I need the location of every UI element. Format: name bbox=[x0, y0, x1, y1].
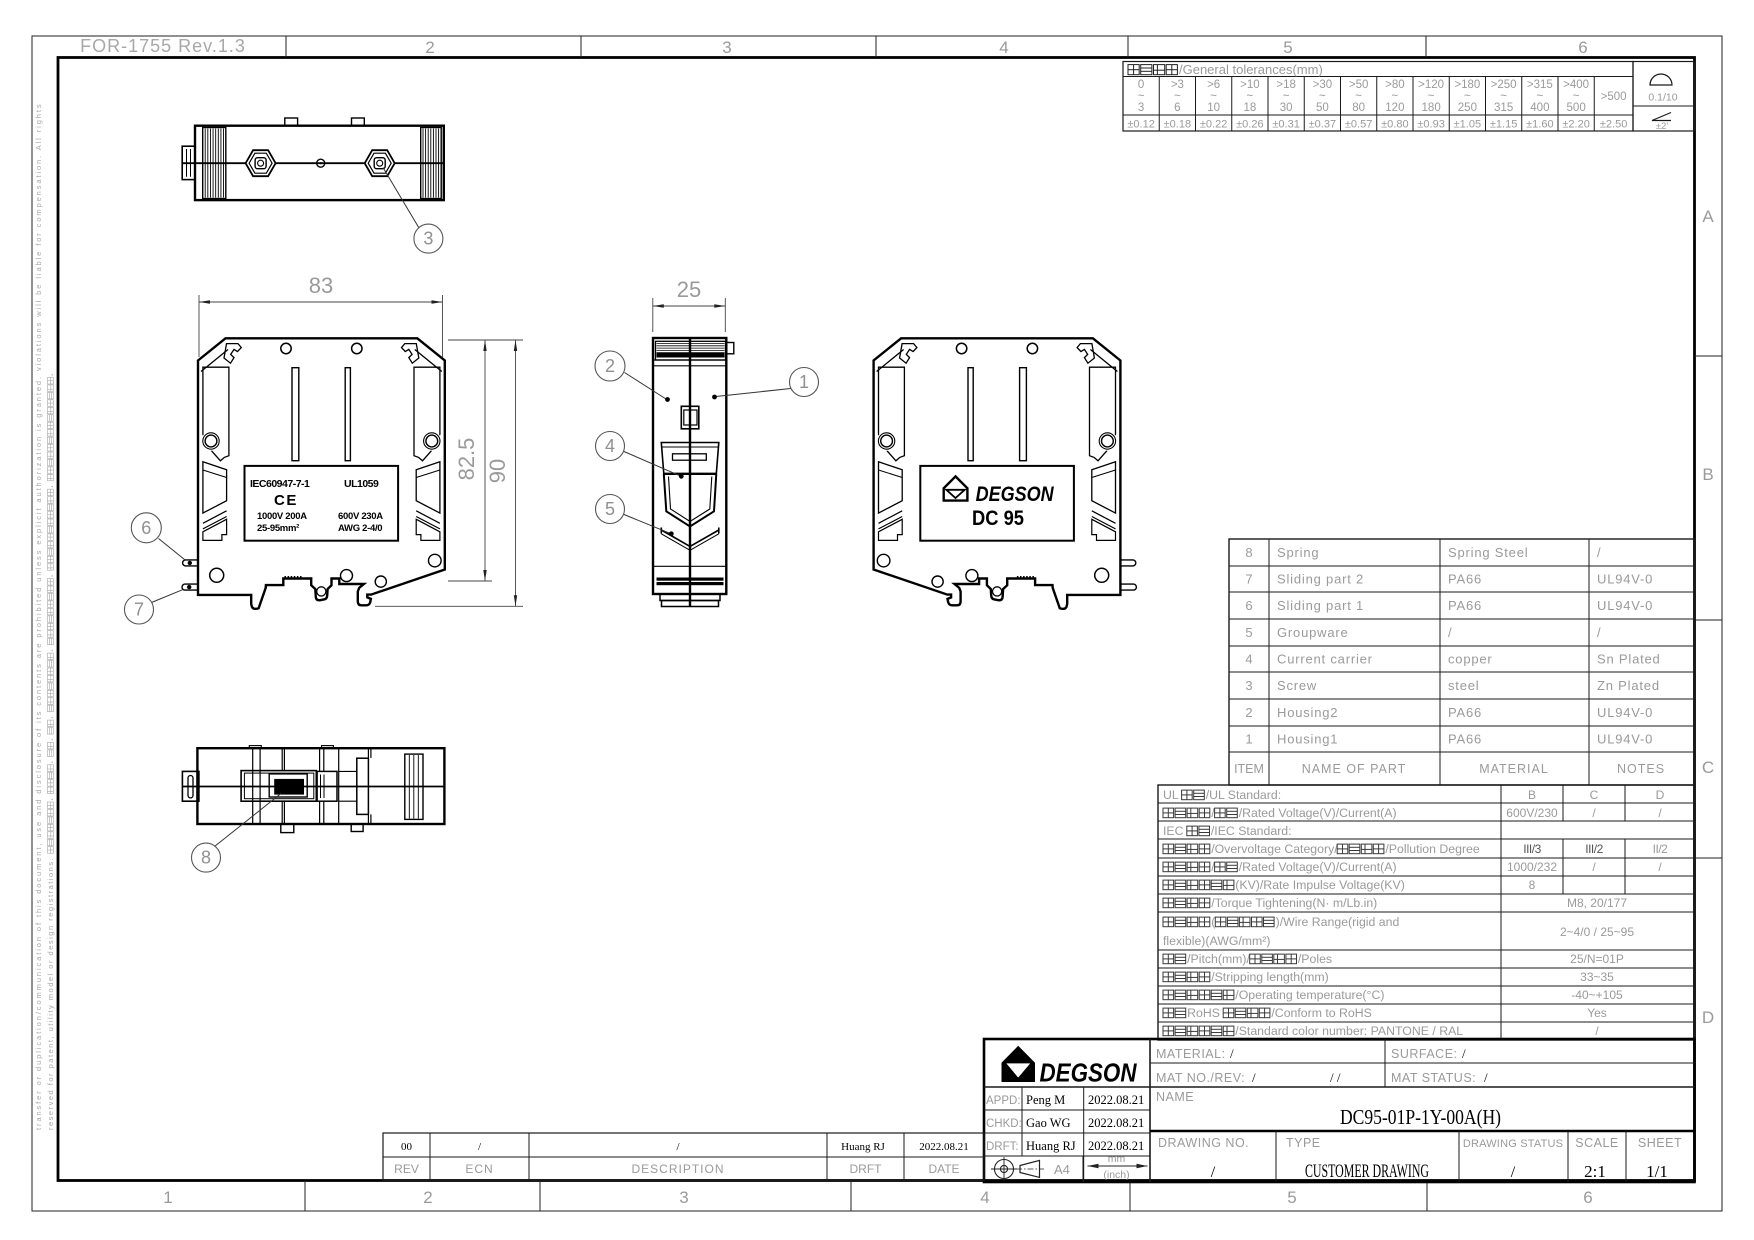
svg-text:3: 3 bbox=[679, 1188, 688, 1207]
svg-text:25-95mm²: 25-95mm² bbox=[257, 523, 299, 534]
svg-text:1: 1 bbox=[163, 1188, 172, 1207]
svg-text:~: ~ bbox=[1210, 91, 1217, 103]
svg-text:2: 2 bbox=[425, 38, 434, 57]
svg-text:~: ~ bbox=[1464, 91, 1471, 103]
svg-text:III/3: III/3 bbox=[1523, 842, 1541, 856]
svg-text:1/1: 1/1 bbox=[1646, 1162, 1668, 1181]
svg-text:2~4/0 / 25~95: 2~4/0 / 25~95 bbox=[1560, 925, 1634, 939]
svg-text:PA66: PA66 bbox=[1448, 598, 1482, 613]
svg-text:/: / bbox=[1484, 1070, 1488, 1085]
svg-text:>6: >6 bbox=[1207, 79, 1220, 91]
svg-text:82.5: 82.5 bbox=[454, 438, 479, 481]
svg-text:~: ~ bbox=[1428, 91, 1435, 103]
svg-text:DRFT:: DRFT: bbox=[986, 1141, 1019, 1153]
svg-text:±0.12: ±0.12 bbox=[1127, 119, 1154, 131]
svg-text:FOR-1755 Rev.1.3: FOR-1755 Rev.1.3 bbox=[80, 36, 246, 56]
svg-text:2022.08.21: 2022.08.21 bbox=[1088, 1139, 1144, 1153]
svg-text:)/Wire Range(rigid and: )/Wire Range(rigid and bbox=[1276, 915, 1400, 929]
svg-text:7: 7 bbox=[134, 600, 144, 620]
svg-text:UL94V-0: UL94V-0 bbox=[1597, 732, 1653, 747]
svg-text:MAT STATUS:: MAT STATUS: bbox=[1391, 1071, 1476, 1085]
svg-text:600V 230A: 600V 230A bbox=[338, 511, 383, 522]
svg-text:18: 18 bbox=[1243, 102, 1256, 114]
svg-text:RoHS: RoHS bbox=[1187, 1006, 1220, 1020]
svg-text:IEC: IEC bbox=[1163, 824, 1184, 838]
svg-text:2:1: 2:1 bbox=[1584, 1162, 1606, 1181]
svg-text:>50: >50 bbox=[1349, 79, 1369, 91]
svg-text:±1.15: ±1.15 bbox=[1490, 119, 1517, 131]
svg-text:DEGSON: DEGSON bbox=[1040, 1058, 1138, 1088]
svg-text:6: 6 bbox=[1578, 38, 1587, 57]
svg-text:/IEC Standard:: /IEC Standard: bbox=[1211, 824, 1292, 838]
svg-text:AWG 2-4/0: AWG 2-4/0 bbox=[338, 523, 382, 534]
svg-text:120: 120 bbox=[1385, 102, 1404, 114]
svg-text:B: B bbox=[1528, 788, 1536, 802]
svg-text:30: 30 bbox=[1280, 102, 1293, 114]
svg-text:/ /: / / bbox=[1330, 1070, 1341, 1085]
svg-text:/: / bbox=[1252, 1070, 1256, 1085]
svg-text:2022.08.21: 2022.08.21 bbox=[1088, 1093, 1144, 1107]
svg-text:Spring: Spring bbox=[1277, 545, 1319, 560]
svg-text:/Rated Voltage(V)/Current(A): /Rated Voltage(V)/Current(A) bbox=[1239, 806, 1397, 820]
svg-text:~: ~ bbox=[1283, 91, 1290, 103]
svg-text:600V/230: 600V/230 bbox=[1506, 806, 1558, 820]
svg-text:0.1/10: 0.1/10 bbox=[1648, 92, 1677, 104]
svg-text:5: 5 bbox=[1283, 38, 1292, 57]
svg-text:D: D bbox=[1656, 788, 1665, 802]
svg-text:flexible)(AWG/mm²): flexible)(AWG/mm²) bbox=[1163, 934, 1270, 948]
svg-text:50: 50 bbox=[1316, 102, 1329, 114]
svg-text:~: ~ bbox=[1392, 91, 1399, 103]
svg-text:2022.08.21: 2022.08.21 bbox=[919, 1141, 969, 1153]
svg-text:5: 5 bbox=[1245, 625, 1252, 640]
svg-text:250: 250 bbox=[1458, 102, 1477, 114]
svg-text:6: 6 bbox=[1174, 102, 1180, 114]
svg-text:4: 4 bbox=[999, 38, 1008, 57]
svg-text:mm: mm bbox=[1108, 1153, 1126, 1165]
svg-text:PA66: PA66 bbox=[1448, 705, 1482, 720]
svg-text:C: C bbox=[1590, 788, 1599, 802]
svg-text:1000/232: 1000/232 bbox=[1507, 860, 1557, 874]
svg-text:>250: >250 bbox=[1491, 79, 1517, 91]
svg-text:±0.37: ±0.37 bbox=[1309, 119, 1336, 131]
svg-text:1: 1 bbox=[1245, 732, 1252, 747]
svg-text:3: 3 bbox=[1245, 678, 1252, 693]
svg-text:MATERIAL: MATERIAL bbox=[1479, 762, 1549, 776]
svg-text:/Poles: /Poles bbox=[1298, 952, 1332, 966]
svg-text:MAT NO./REV:: MAT NO./REV: bbox=[1156, 1071, 1245, 1085]
svg-text:UL94V-0: UL94V-0 bbox=[1597, 705, 1653, 720]
svg-text:3: 3 bbox=[1138, 102, 1144, 114]
svg-text:PA66: PA66 bbox=[1448, 572, 1482, 587]
svg-text:UL: UL bbox=[1163, 788, 1179, 802]
svg-text:Housing2: Housing2 bbox=[1277, 705, 1338, 720]
svg-text:±0.80: ±0.80 bbox=[1381, 119, 1408, 131]
svg-text:NOTES: NOTES bbox=[1617, 762, 1665, 776]
svg-text:00: 00 bbox=[401, 1141, 413, 1153]
svg-text:8: 8 bbox=[201, 848, 211, 868]
svg-text:III/2: III/2 bbox=[1585, 842, 1603, 856]
svg-text:/General tolerances(mm): /General tolerances(mm) bbox=[1179, 62, 1323, 77]
svg-text:/: / bbox=[1597, 545, 1601, 560]
svg-text:DESCRIPTION: DESCRIPTION bbox=[631, 1162, 724, 1176]
svg-text:>400: >400 bbox=[1563, 79, 1589, 91]
svg-text:M8, 20/177: M8, 20/177 bbox=[1567, 896, 1627, 910]
svg-text:>10: >10 bbox=[1240, 79, 1260, 91]
svg-text:/UL Standard:: /UL Standard: bbox=[1206, 788, 1281, 802]
svg-text:copper: copper bbox=[1448, 652, 1493, 667]
svg-text:SURFACE:: SURFACE: bbox=[1391, 1047, 1458, 1061]
svg-text:±2': ±2' bbox=[1656, 121, 1668, 132]
svg-text:~: ~ bbox=[1174, 91, 1181, 103]
svg-text:2: 2 bbox=[605, 356, 615, 376]
svg-text:4: 4 bbox=[605, 436, 615, 456]
svg-text:±0.18: ±0.18 bbox=[1164, 119, 1191, 131]
svg-text:/Operating temperature(°C): /Operating temperature(°C) bbox=[1235, 988, 1384, 1002]
svg-text:UL1059: UL1059 bbox=[344, 478, 379, 490]
svg-text:/Conform to RoHS: /Conform to RoHS bbox=[1271, 1006, 1371, 1020]
svg-text:2: 2 bbox=[1245, 705, 1252, 720]
svg-text:~: ~ bbox=[1573, 91, 1580, 103]
svg-text:C: C bbox=[1702, 758, 1714, 777]
svg-text:ECN: ECN bbox=[465, 1162, 493, 1176]
svg-text:8: 8 bbox=[1529, 878, 1536, 892]
svg-text:±2.50: ±2.50 bbox=[1600, 119, 1627, 131]
svg-text:Peng M: Peng M bbox=[1026, 1093, 1065, 1107]
svg-text:180: 180 bbox=[1422, 102, 1441, 114]
svg-text:Sliding part 2: Sliding part 2 bbox=[1277, 572, 1364, 587]
svg-text:3: 3 bbox=[423, 229, 433, 249]
svg-text:II/2: II/2 bbox=[1653, 842, 1669, 856]
svg-text:25/N=01P: 25/N=01P bbox=[1570, 952, 1624, 966]
svg-text:A4: A4 bbox=[1054, 1162, 1070, 1177]
svg-text:7: 7 bbox=[1245, 572, 1252, 587]
svg-text:/: / bbox=[1211, 1164, 1216, 1181]
svg-text:DEGSON: DEGSON bbox=[976, 483, 1055, 506]
svg-text:/Pitch(mm)/: /Pitch(mm)/ bbox=[1187, 952, 1250, 966]
svg-text:>30: >30 bbox=[1313, 79, 1333, 91]
svg-text:A: A bbox=[1702, 207, 1714, 226]
svg-text:Groupware: Groupware bbox=[1277, 625, 1349, 640]
svg-text:315: 315 bbox=[1494, 102, 1513, 114]
svg-text:Gao WG: Gao WG bbox=[1026, 1116, 1071, 1130]
svg-text:Huang RJ: Huang RJ bbox=[1026, 1139, 1076, 1153]
svg-text:TYPE: TYPE bbox=[1286, 1136, 1321, 1150]
svg-text:CE: CE bbox=[274, 492, 298, 509]
svg-text:DC95-01P-1Y-00A(H): DC95-01P-1Y-00A(H) bbox=[1340, 1105, 1501, 1129]
svg-text:>180: >180 bbox=[1454, 79, 1480, 91]
svg-text:B: B bbox=[1702, 465, 1713, 484]
svg-text:~: ~ bbox=[1247, 91, 1254, 103]
svg-text:/: / bbox=[1448, 625, 1452, 640]
svg-text:DRAWING STATUS: DRAWING STATUS bbox=[1463, 1138, 1563, 1150]
svg-text:Huang RJ: Huang RJ bbox=[841, 1141, 885, 1153]
svg-text:Sliding part 1: Sliding part 1 bbox=[1277, 598, 1364, 613]
svg-text:REV: REV bbox=[394, 1162, 419, 1176]
svg-text:APPD:: APPD: bbox=[986, 1095, 1021, 1107]
svg-text:SHEET: SHEET bbox=[1638, 1136, 1682, 1150]
svg-text:DRFT: DRFT bbox=[850, 1162, 883, 1176]
svg-text:/: / bbox=[1462, 1046, 1466, 1061]
svg-text:±2.20: ±2.20 bbox=[1562, 119, 1589, 131]
svg-text:>18: >18 bbox=[1276, 79, 1296, 91]
svg-text:~: ~ bbox=[1500, 91, 1507, 103]
svg-text:~: ~ bbox=[1537, 91, 1544, 103]
svg-text:~: ~ bbox=[1319, 91, 1326, 103]
svg-text:80: 80 bbox=[1352, 102, 1365, 114]
svg-text:Sn Plated: Sn Plated bbox=[1597, 652, 1661, 667]
svg-text:10: 10 bbox=[1207, 102, 1220, 114]
svg-text:Current carrier: Current carrier bbox=[1277, 652, 1373, 667]
svg-text:2022.08.21: 2022.08.21 bbox=[1088, 1116, 1144, 1130]
svg-text:33~35: 33~35 bbox=[1580, 970, 1614, 984]
svg-text:3: 3 bbox=[722, 38, 731, 57]
svg-text:2: 2 bbox=[423, 1188, 432, 1207]
svg-text:transfer or duplication/commun: transfer or duplication/communication of… bbox=[34, 103, 43, 1130]
svg-text:1000V 200A: 1000V 200A bbox=[257, 511, 307, 522]
svg-text:/: / bbox=[1511, 1164, 1516, 1181]
svg-text:Yes: Yes bbox=[1587, 1006, 1607, 1020]
svg-text:CHKD:: CHKD: bbox=[986, 1118, 1022, 1130]
svg-text:UL94V-0: UL94V-0 bbox=[1597, 572, 1653, 587]
svg-text:(inch): (inch) bbox=[1103, 1169, 1129, 1181]
svg-text:±0.22: ±0.22 bbox=[1200, 119, 1227, 131]
svg-text:4: 4 bbox=[980, 1188, 989, 1207]
svg-text:/Pollution Degree: /Pollution Degree bbox=[1385, 842, 1479, 856]
svg-text:Spring Steel: Spring Steel bbox=[1448, 545, 1528, 560]
svg-text:±0.26: ±0.26 bbox=[1236, 119, 1263, 131]
svg-text:6: 6 bbox=[1583, 1188, 1592, 1207]
svg-text:±0.31: ±0.31 bbox=[1272, 119, 1299, 131]
svg-text:DC 95: DC 95 bbox=[972, 507, 1024, 530]
svg-text:ITEM: ITEM bbox=[1234, 762, 1264, 776]
svg-text:SCALE: SCALE bbox=[1575, 1136, 1619, 1150]
svg-text:/Standard color number: PANTON: /Standard color number: PANTONE / RAL bbox=[1235, 1024, 1463, 1038]
svg-text:5: 5 bbox=[1287, 1188, 1296, 1207]
svg-text:UL94V-0: UL94V-0 bbox=[1597, 598, 1653, 613]
svg-text:/Torque Tightening(N· m/Lb.in): /Torque Tightening(N· m/Lb.in) bbox=[1211, 896, 1377, 910]
svg-text:25: 25 bbox=[677, 277, 701, 302]
svg-text:NAME: NAME bbox=[1156, 1090, 1194, 1104]
svg-text:83: 83 bbox=[309, 273, 333, 298]
svg-text:6: 6 bbox=[1245, 598, 1252, 613]
svg-text:DRAWING NO.: DRAWING NO. bbox=[1158, 1136, 1249, 1150]
svg-text:1: 1 bbox=[799, 372, 809, 392]
svg-text:5: 5 bbox=[605, 499, 615, 519]
svg-text:>80: >80 bbox=[1385, 79, 1405, 91]
svg-text:8: 8 bbox=[1245, 545, 1252, 560]
svg-text:±1.60: ±1.60 bbox=[1526, 119, 1553, 131]
svg-text:~: ~ bbox=[1138, 91, 1145, 103]
svg-text:Zn Plated: Zn Plated bbox=[1597, 678, 1660, 693]
svg-text:>315: >315 bbox=[1527, 79, 1553, 91]
svg-text:500: 500 bbox=[1567, 102, 1586, 114]
svg-text:steel: steel bbox=[1448, 678, 1479, 693]
svg-text:Screw: Screw bbox=[1277, 678, 1317, 693]
svg-text:(KV)/Rate Impulse Voltage(KV): (KV)/Rate Impulse Voltage(KV) bbox=[1235, 878, 1405, 892]
svg-text:/Rated Voltage(V)/Current(A): /Rated Voltage(V)/Current(A) bbox=[1239, 860, 1397, 874]
svg-text:-40~+105: -40~+105 bbox=[1571, 988, 1623, 1002]
svg-text:Housing1: Housing1 bbox=[1277, 732, 1338, 747]
svg-text:IEC60947-7-1: IEC60947-7-1 bbox=[250, 478, 310, 490]
svg-text:>120: >120 bbox=[1418, 79, 1444, 91]
svg-text:/Overvoltage Category/: /Overvoltage Category/ bbox=[1211, 842, 1338, 856]
svg-text:±1.05: ±1.05 bbox=[1454, 119, 1481, 131]
svg-text:NAME OF PART: NAME OF PART bbox=[1302, 762, 1407, 776]
svg-text:PA66: PA66 bbox=[1448, 732, 1482, 747]
svg-text:D: D bbox=[1702, 1008, 1714, 1027]
svg-text:DATE: DATE bbox=[928, 1162, 959, 1176]
svg-text:>500: >500 bbox=[1601, 91, 1627, 103]
svg-text:0: 0 bbox=[1138, 79, 1144, 91]
svg-text:MATERIAL:: MATERIAL: bbox=[1156, 1047, 1226, 1061]
svg-text:>3: >3 bbox=[1171, 79, 1184, 91]
svg-text:±0.57: ±0.57 bbox=[1345, 119, 1372, 131]
svg-text:CUSTOMER DRAWING: CUSTOMER DRAWING bbox=[1305, 1161, 1429, 1182]
svg-text:90: 90 bbox=[485, 459, 510, 483]
svg-text:±0.93: ±0.93 bbox=[1417, 119, 1444, 131]
svg-text:/Stripping length(mm): /Stripping length(mm) bbox=[1211, 970, 1329, 984]
svg-text:4: 4 bbox=[1245, 652, 1252, 667]
svg-text:/: / bbox=[1230, 1046, 1234, 1061]
svg-text:~: ~ bbox=[1355, 91, 1362, 103]
svg-text:400: 400 bbox=[1530, 102, 1549, 114]
svg-text:6: 6 bbox=[141, 518, 151, 538]
svg-text:/: / bbox=[1597, 625, 1601, 640]
svg-text:reserved for patent, utility m: reserved for patent, utility model or de… bbox=[46, 857, 55, 1130]
